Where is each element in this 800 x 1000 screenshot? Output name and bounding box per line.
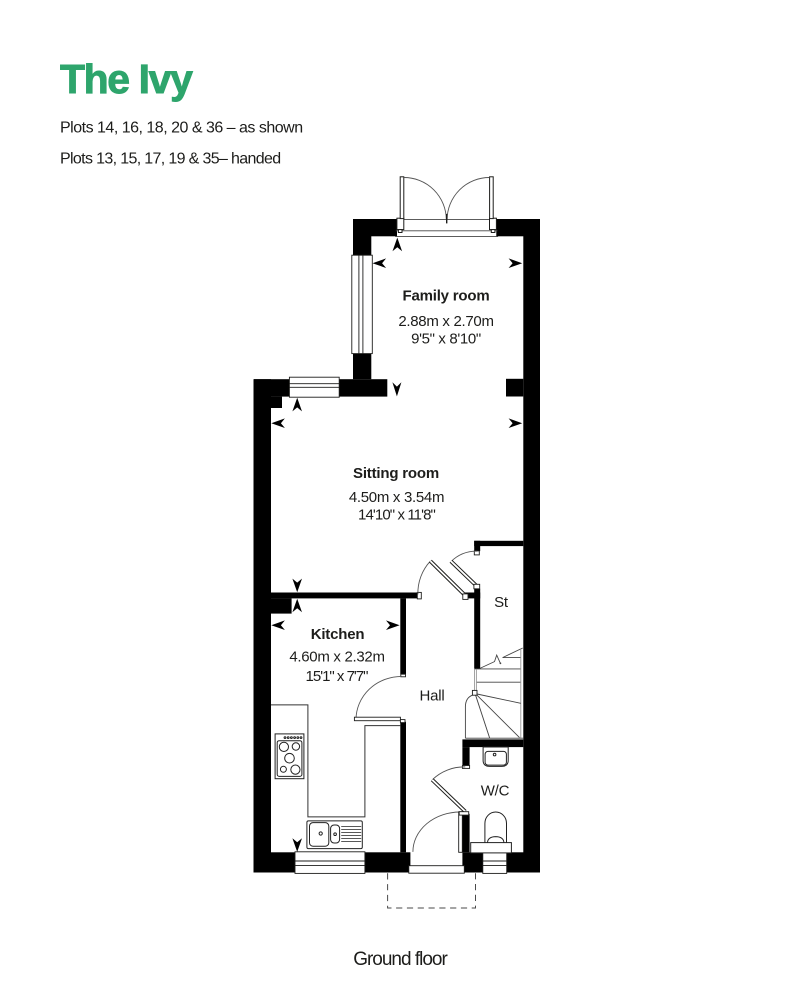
svg-text:W/C: W/C <box>481 783 510 800</box>
svg-text:2.88m x 2.70m: 2.88m x 2.70m <box>398 313 493 330</box>
svg-text:14'10" x 11'8": 14'10" x 11'8" <box>358 507 435 524</box>
svg-text:St: St <box>494 594 509 611</box>
svg-text:Plots 13, 15, 17, 19 & 35– han: Plots 13, 15, 17, 19 & 35– handed <box>60 151 281 168</box>
svg-text:Hall: Hall <box>419 688 444 705</box>
svg-text:The Ivy: The Ivy <box>60 56 193 102</box>
svg-text:Sitting room: Sitting room <box>353 465 439 482</box>
svg-text:9'5" x 8'10": 9'5" x 8'10" <box>411 331 481 348</box>
svg-text:Kitchen: Kitchen <box>311 626 365 643</box>
svg-text:15'1" x 7'7": 15'1" x 7'7" <box>306 668 369 685</box>
svg-text:Family room: Family room <box>403 288 490 305</box>
svg-text:4.50m x 3.54m: 4.50m x 3.54m <box>349 489 444 506</box>
svg-text:Ground floor: Ground floor <box>353 949 448 970</box>
svg-text:Plots 14, 16, 18, 20 & 36 – as: Plots 14, 16, 18, 20 & 36 – as shown <box>60 120 303 137</box>
svg-text:4.60m x 2.32m: 4.60m x 2.32m <box>289 649 384 666</box>
